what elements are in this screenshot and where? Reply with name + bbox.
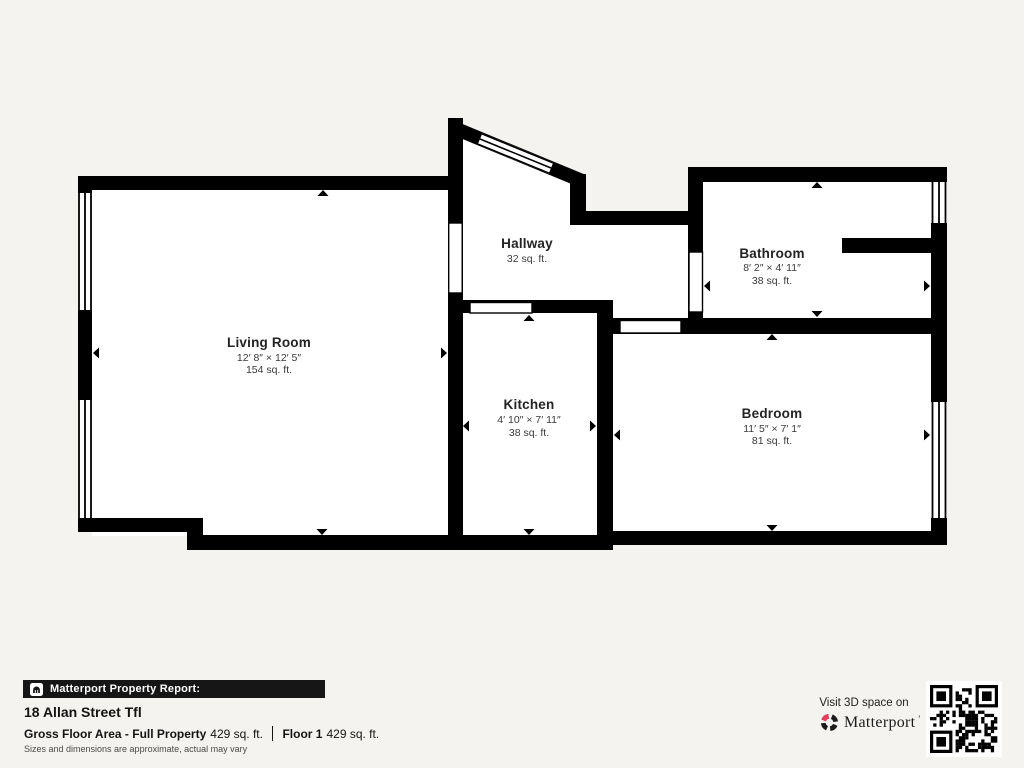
room-label-hallway: Hallway 32 sq. ft. bbox=[501, 236, 553, 265]
gross-floor-area-value: 429 sq. ft. bbox=[210, 727, 263, 741]
room-dimensions: 4′ 10″ × 7′ 11″ bbox=[497, 414, 561, 426]
report-title: Matterport Property Report: bbox=[50, 683, 200, 695]
door bbox=[470, 303, 532, 314]
hallway-floor bbox=[463, 139, 688, 318]
matterport-wordmark: Matterport bbox=[844, 714, 915, 732]
floorplan-floors bbox=[92, 139, 931, 537]
matterport-logo: Matterport' bbox=[820, 713, 922, 732]
qr-code bbox=[926, 681, 1002, 762]
kitchen-floor bbox=[462, 315, 597, 537]
room-dimensions: 8′ 2″ × 4′ 11″ bbox=[743, 262, 801, 274]
window bbox=[931, 182, 947, 223]
floor-label: Floor 1 bbox=[282, 727, 322, 741]
room-dimensions: 11′ 5″ × 7′ 1″ bbox=[743, 423, 801, 435]
room-area: 154 sq. ft. bbox=[246, 364, 292, 376]
room-name: Kitchen bbox=[504, 397, 555, 412]
window bbox=[78, 193, 92, 310]
door bbox=[620, 321, 681, 334]
home-icon bbox=[30, 683, 43, 696]
trademark-tick: ' bbox=[918, 714, 920, 724]
window bbox=[78, 400, 92, 518]
room-name: Bedroom bbox=[742, 406, 803, 421]
room-area: 81 sq. ft. bbox=[752, 435, 792, 447]
room-area: 38 sq. ft. bbox=[509, 427, 549, 439]
room-name: Living Room bbox=[227, 335, 311, 350]
visit-3d-text: Visit 3D space on bbox=[816, 697, 912, 709]
floor-plan: Living Room 12′ 8″ × 12′ 5″ 154 sq. ft. … bbox=[0, 0, 1024, 768]
floor-area-stats: Gross Floor Area - Full Property 429 sq.… bbox=[24, 726, 379, 741]
door bbox=[689, 252, 703, 312]
property-address: 18 Allan Street Tfl bbox=[24, 704, 142, 720]
room-dimensions: 12′ 8″ × 12′ 5″ bbox=[237, 352, 301, 364]
gross-floor-area-label: Gross Floor Area - Full Property bbox=[24, 727, 206, 741]
door bbox=[449, 223, 463, 293]
disclaimer-text: Sizes and dimensions are approximate, ac… bbox=[24, 744, 247, 754]
window bbox=[931, 402, 947, 518]
room-name: Bathroom bbox=[739, 246, 804, 261]
room-area: 32 sq. ft. bbox=[507, 253, 547, 265]
room-area: 38 sq. ft. bbox=[752, 275, 792, 287]
room-name: Hallway bbox=[501, 236, 553, 251]
stats-divider bbox=[272, 726, 274, 741]
matterport-pinwheel-icon bbox=[820, 713, 839, 732]
floor-value: 429 sq. ft. bbox=[326, 727, 379, 741]
report-header-bar: Matterport Property Report: bbox=[23, 680, 325, 698]
